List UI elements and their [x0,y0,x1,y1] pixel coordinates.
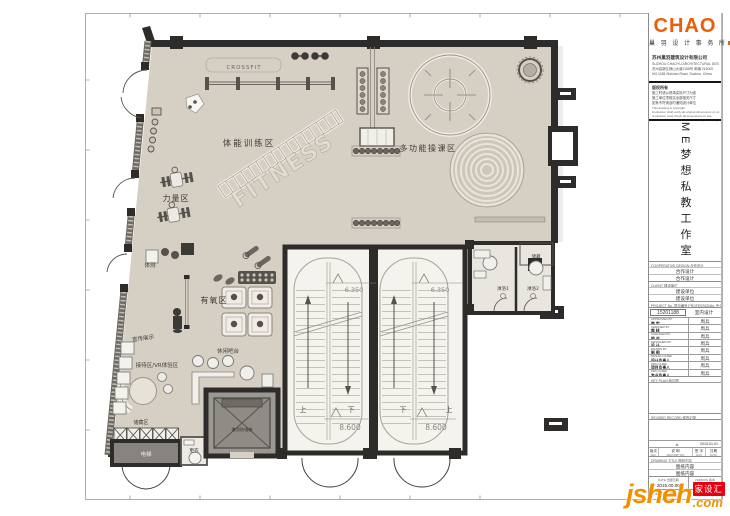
issue-date: 2015.00.00 [649,483,688,488]
label-shower-2: 淋浴2 [527,285,539,292]
revision-empty-rows [649,419,721,440]
project-number: 15201188 [650,309,686,316]
stair-elevation-upper-left: 6.350 [345,286,364,294]
sheet-no-row: SHEET No. 图号 [649,489,721,499]
label-training-zone: 体能训练区 [223,138,276,149]
stair-dir-down-2: 下 [400,406,407,414]
project-name-vertical: ME梦想私教工作室 [649,122,721,261]
revision-columns-header: 版次REV. 说 明DESCRIPTION 签 字SIGN 日期DATE [649,447,721,456]
version-value: A [689,483,721,488]
label-elevator: 电梯 [140,450,152,458]
stair-dir-down-1: 下 [348,406,355,414]
client-row: 建设单位 [649,287,721,294]
project-no-row: 15201188 室内设计 [649,307,721,317]
label-shower-1: 淋浴1 [497,285,509,292]
stairwell [277,245,465,487]
stair-dir-up-2: 上 [446,405,453,414]
label-fire-elevator: 兼消防电梯 [232,426,253,433]
issue-date-label: DATE 出图日期 [649,478,688,482]
title-block: CHAO 巢 羽 设 计 事 务 所 苏州巢羽建筑设计有限公司 SUZHOU C… [648,13,722,499]
label-reception-zone: 接待区/VR体验区 [136,361,179,369]
barre-shelf [475,217,545,222]
stair-dir-up-1: 上 [300,405,307,414]
profession: 室内设计 [687,308,721,317]
drawing-sheet: FITNESS [0,0,730,516]
label-crossfit-zone: CROSSFIT [226,65,261,71]
label-bar-zone: 休闲吧台 [217,347,240,355]
coop-row: 合作设计 [649,267,721,274]
label-storage-zone: 储藏区 [133,419,148,426]
approval-row: APPROVED BY审 定周兵 [649,317,721,324]
passenger-elevator [112,441,180,489]
approval-row: CHECKED BY校 对周兵 [649,332,721,339]
label-small-storage: 储藏 [532,253,541,260]
label-changing-room: 更衣 [189,447,199,454]
firm-logo: CHAO [649,16,721,36]
label-strength-zone: 力量区 [163,193,190,203]
label-multi-class-zone: 多功能操课区 [400,143,457,153]
issue-row: DATE 出图日期2015.00.00 VERSION 版本A [649,476,721,489]
column [170,36,183,49]
label-cardio-zone: 有氧区 [201,295,228,305]
approval-row: PRO.CHIEF项目负责人周兵 [649,361,721,368]
column [524,36,537,49]
coop-row: 合作设计 [649,274,721,281]
firm-logo-block: CHAO 巢 羽 设 计 事 务 所 [649,13,721,53]
divider-bar [649,81,721,83]
approval-row: DRAWN BY制 图周兵 [649,346,721,353]
client-row: 建设单位 [649,294,721,301]
spiral-rug [450,133,524,207]
approval-row: DESIGNED BY设 计周兵 [649,339,721,346]
floor-plan-canvas: FITNESS [0,0,730,516]
fire-elevator [206,390,278,458]
approval-row: DESIGN CHIEF设计负责人周兵 [649,354,721,361]
divider-bar [649,119,721,121]
version-label: VERSION 版本 [689,478,721,482]
firm-logo-subtitle: 巢 羽 设 计 事 务 所 [649,41,727,47]
copyright-notes: 版权所有 施工时请以现场实际尺寸为准 施工单位须核实全部相关尺寸 如有不符请及时… [649,84,721,118]
elevator-door-arcs [122,466,170,489]
stair-entry-doors [302,458,450,487]
drawing-title-row: 图纸内容 [649,462,721,469]
firm-info: 苏州巢羽建筑设计有限公司 SUZHOU CHAOYU ARCHITECTURAL… [649,53,721,80]
stair-elevation-lower-right: 8.600 [425,423,447,432]
company-address-en: NO.1188 Shishan Road, Suzhou, China [652,72,719,77]
approval-row: PRO.CHIEF专业负责人周兵 [649,369,721,376]
company-name-cn: 苏州巢羽建筑设计有限公司 [652,55,719,62]
revision-row: A 2015.01.01 [649,440,721,447]
stair-elevation-upper-right: 6.350 [431,286,450,294]
key-plan-box [649,382,721,413]
stair-elevation-lower-left: 8.600 [339,423,361,432]
approval-row: VERIFIED BY审 核周兵 [649,324,721,331]
drawing-title-row: 图纸内容 [649,469,721,476]
column [367,36,380,49]
label-body-test: 体测 [144,261,156,269]
